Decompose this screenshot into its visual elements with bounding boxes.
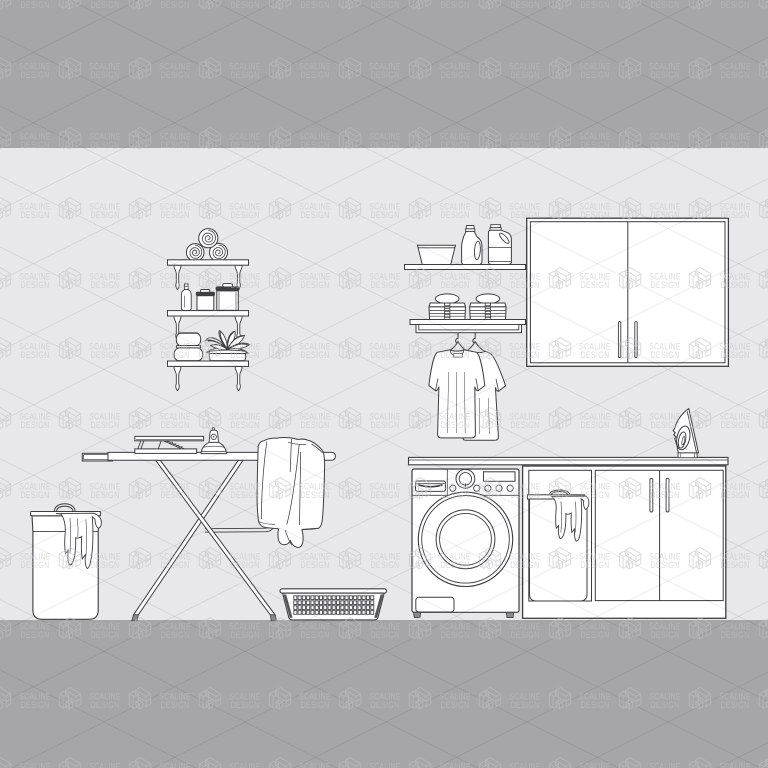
svg-text:DESIGN: DESIGN <box>231 140 260 150</box>
svg-text:DESIGN: DESIGN <box>651 70 680 80</box>
svg-text:DESIGN: DESIGN <box>21 420 50 430</box>
svg-text:DESIGN: DESIGN <box>161 0 190 10</box>
svg-text:DESIGN: DESIGN <box>441 350 470 360</box>
svg-text:DESIGN: DESIGN <box>301 560 330 570</box>
svg-text:DESIGN: DESIGN <box>91 490 120 500</box>
svg-text:SCALINE: SCALINE <box>439 762 471 768</box>
svg-text:DESIGN: DESIGN <box>441 630 470 640</box>
svg-text:DESIGN: DESIGN <box>511 490 540 500</box>
svg-text:DESIGN: DESIGN <box>721 700 750 710</box>
svg-text:DESIGN: DESIGN <box>161 490 190 500</box>
svg-text:DESIGN: DESIGN <box>721 210 750 220</box>
svg-text:DESIGN: DESIGN <box>581 350 610 360</box>
svg-text:DESIGN: DESIGN <box>511 0 540 10</box>
svg-text:DESIGN: DESIGN <box>301 0 330 10</box>
svg-text:DESIGN: DESIGN <box>91 0 120 10</box>
svg-text:DESIGN: DESIGN <box>651 140 680 150</box>
svg-text:DESIGN: DESIGN <box>581 210 610 220</box>
svg-text:DESIGN: DESIGN <box>371 280 400 290</box>
svg-text:DESIGN: DESIGN <box>651 280 680 290</box>
svg-text:DESIGN: DESIGN <box>511 700 540 710</box>
svg-text:DESIGN: DESIGN <box>301 700 330 710</box>
svg-text:SCALINE: SCALINE <box>719 762 751 768</box>
svg-text:DESIGN: DESIGN <box>511 420 540 430</box>
svg-text:DESIGN: DESIGN <box>371 490 400 500</box>
svg-text:DESIGN: DESIGN <box>21 700 50 710</box>
svg-text:DESIGN: DESIGN <box>21 210 50 220</box>
svg-text:SCALINE: SCALINE <box>229 762 261 768</box>
svg-text:DESIGN: DESIGN <box>161 700 190 710</box>
svg-text:DESIGN: DESIGN <box>721 420 750 430</box>
svg-text:DESIGN: DESIGN <box>511 140 540 150</box>
svg-text:DESIGN: DESIGN <box>581 280 610 290</box>
svg-text:DESIGN: DESIGN <box>231 700 260 710</box>
svg-text:DESIGN: DESIGN <box>511 280 540 290</box>
svg-text:DESIGN: DESIGN <box>301 490 330 500</box>
svg-text:DESIGN: DESIGN <box>581 700 610 710</box>
svg-text:DESIGN: DESIGN <box>651 210 680 220</box>
svg-text:DESIGN: DESIGN <box>511 350 540 360</box>
svg-text:DESIGN: DESIGN <box>161 420 190 430</box>
svg-text:DESIGN: DESIGN <box>161 140 190 150</box>
svg-text:DESIGN: DESIGN <box>231 210 260 220</box>
svg-text:DESIGN: DESIGN <box>161 70 190 80</box>
svg-text:DESIGN: DESIGN <box>231 420 260 430</box>
svg-text:SCALINE: SCALINE <box>159 762 191 768</box>
svg-text:DESIGN: DESIGN <box>441 700 470 710</box>
svg-text:DESIGN: DESIGN <box>301 630 330 640</box>
svg-text:DESIGN: DESIGN <box>721 0 750 10</box>
svg-text:DESIGN: DESIGN <box>371 630 400 640</box>
svg-text:SCALINE: SCALINE <box>299 762 331 768</box>
svg-text:DESIGN: DESIGN <box>441 0 470 10</box>
svg-text:DESIGN: DESIGN <box>91 700 120 710</box>
svg-text:DESIGN: DESIGN <box>161 560 190 570</box>
svg-text:DESIGN: DESIGN <box>91 140 120 150</box>
svg-text:DESIGN: DESIGN <box>21 490 50 500</box>
svg-text:DESIGN: DESIGN <box>721 490 750 500</box>
svg-text:DESIGN: DESIGN <box>441 70 470 80</box>
svg-text:DESIGN: DESIGN <box>91 350 120 360</box>
svg-text:DESIGN: DESIGN <box>721 630 750 640</box>
svg-text:SCALINE: SCALINE <box>649 762 681 768</box>
svg-text:SCALINE: SCALINE <box>369 762 401 768</box>
svg-text:DESIGN: DESIGN <box>231 70 260 80</box>
svg-text:DESIGN: DESIGN <box>651 350 680 360</box>
svg-text:DESIGN: DESIGN <box>21 350 50 360</box>
svg-text:DESIGN: DESIGN <box>721 560 750 570</box>
svg-text:DESIGN: DESIGN <box>581 0 610 10</box>
svg-text:DESIGN: DESIGN <box>721 70 750 80</box>
svg-text:DESIGN: DESIGN <box>91 210 120 220</box>
svg-text:DESIGN: DESIGN <box>721 350 750 360</box>
svg-text:DESIGN: DESIGN <box>581 490 610 500</box>
svg-text:DESIGN: DESIGN <box>301 420 330 430</box>
svg-text:DESIGN: DESIGN <box>511 560 540 570</box>
svg-text:DESIGN: DESIGN <box>371 0 400 10</box>
svg-text:DESIGN: DESIGN <box>21 560 50 570</box>
svg-text:DESIGN: DESIGN <box>91 420 120 430</box>
svg-text:DESIGN: DESIGN <box>301 210 330 220</box>
svg-text:DESIGN: DESIGN <box>371 350 400 360</box>
svg-text:DESIGN: DESIGN <box>21 0 50 10</box>
svg-text:DESIGN: DESIGN <box>161 350 190 360</box>
svg-text:DESIGN: DESIGN <box>231 490 260 500</box>
svg-text:DESIGN: DESIGN <box>21 140 50 150</box>
svg-text:DESIGN: DESIGN <box>21 70 50 80</box>
svg-text:DESIGN: DESIGN <box>91 280 120 290</box>
svg-text:DESIGN: DESIGN <box>231 350 260 360</box>
svg-text:DESIGN: DESIGN <box>441 210 470 220</box>
svg-text:DESIGN: DESIGN <box>91 70 120 80</box>
svg-text:DESIGN: DESIGN <box>231 0 260 10</box>
svg-text:DESIGN: DESIGN <box>581 630 610 640</box>
svg-text:DESIGN: DESIGN <box>371 420 400 430</box>
svg-text:DESIGN: DESIGN <box>511 630 540 640</box>
svg-text:DESIGN: DESIGN <box>371 210 400 220</box>
svg-text:DESIGN: DESIGN <box>441 490 470 500</box>
svg-text:DESIGN: DESIGN <box>581 420 610 430</box>
svg-text:DESIGN: DESIGN <box>161 210 190 220</box>
svg-text:DESIGN: DESIGN <box>651 560 680 570</box>
svg-text:DESIGN: DESIGN <box>511 210 540 220</box>
svg-text:DESIGN: DESIGN <box>441 280 470 290</box>
svg-text:DESIGN: DESIGN <box>371 700 400 710</box>
svg-text:DESIGN: DESIGN <box>651 490 680 500</box>
svg-text:DESIGN: DESIGN <box>371 70 400 80</box>
svg-text:DESIGN: DESIGN <box>721 280 750 290</box>
svg-text:SCALINE: SCALINE <box>19 762 51 768</box>
svg-text:DESIGN: DESIGN <box>21 280 50 290</box>
svg-text:SCALINE: SCALINE <box>509 762 541 768</box>
svg-text:SCALINE: SCALINE <box>579 762 611 768</box>
svg-text:DESIGN: DESIGN <box>301 140 330 150</box>
svg-text:DESIGN: DESIGN <box>441 140 470 150</box>
svg-text:DESIGN: DESIGN <box>231 280 260 290</box>
svg-text:DESIGN: DESIGN <box>651 630 680 640</box>
svg-text:DESIGN: DESIGN <box>161 630 190 640</box>
svg-text:DESIGN: DESIGN <box>301 350 330 360</box>
svg-text:DESIGN: DESIGN <box>371 140 400 150</box>
svg-text:DESIGN: DESIGN <box>441 420 470 430</box>
svg-text:DESIGN: DESIGN <box>441 560 470 570</box>
svg-text:DESIGN: DESIGN <box>301 280 330 290</box>
svg-text:DESIGN: DESIGN <box>651 700 680 710</box>
svg-text:DESIGN: DESIGN <box>651 420 680 430</box>
svg-text:DESIGN: DESIGN <box>721 140 750 150</box>
svg-text:DESIGN: DESIGN <box>231 560 260 570</box>
svg-text:DESIGN: DESIGN <box>21 630 50 640</box>
svg-text:DESIGN: DESIGN <box>161 280 190 290</box>
svg-text:DESIGN: DESIGN <box>581 560 610 570</box>
svg-text:DESIGN: DESIGN <box>511 70 540 80</box>
svg-text:DESIGN: DESIGN <box>91 560 120 570</box>
svg-text:SCALINE: SCALINE <box>89 762 121 768</box>
svg-text:DESIGN: DESIGN <box>371 560 400 570</box>
svg-text:DESIGN: DESIGN <box>91 630 120 640</box>
svg-text:DESIGN: DESIGN <box>301 70 330 80</box>
svg-text:DESIGN: DESIGN <box>581 70 610 80</box>
svg-text:DESIGN: DESIGN <box>581 140 610 150</box>
svg-text:DESIGN: DESIGN <box>651 0 680 10</box>
svg-text:DESIGN: DESIGN <box>231 630 260 640</box>
